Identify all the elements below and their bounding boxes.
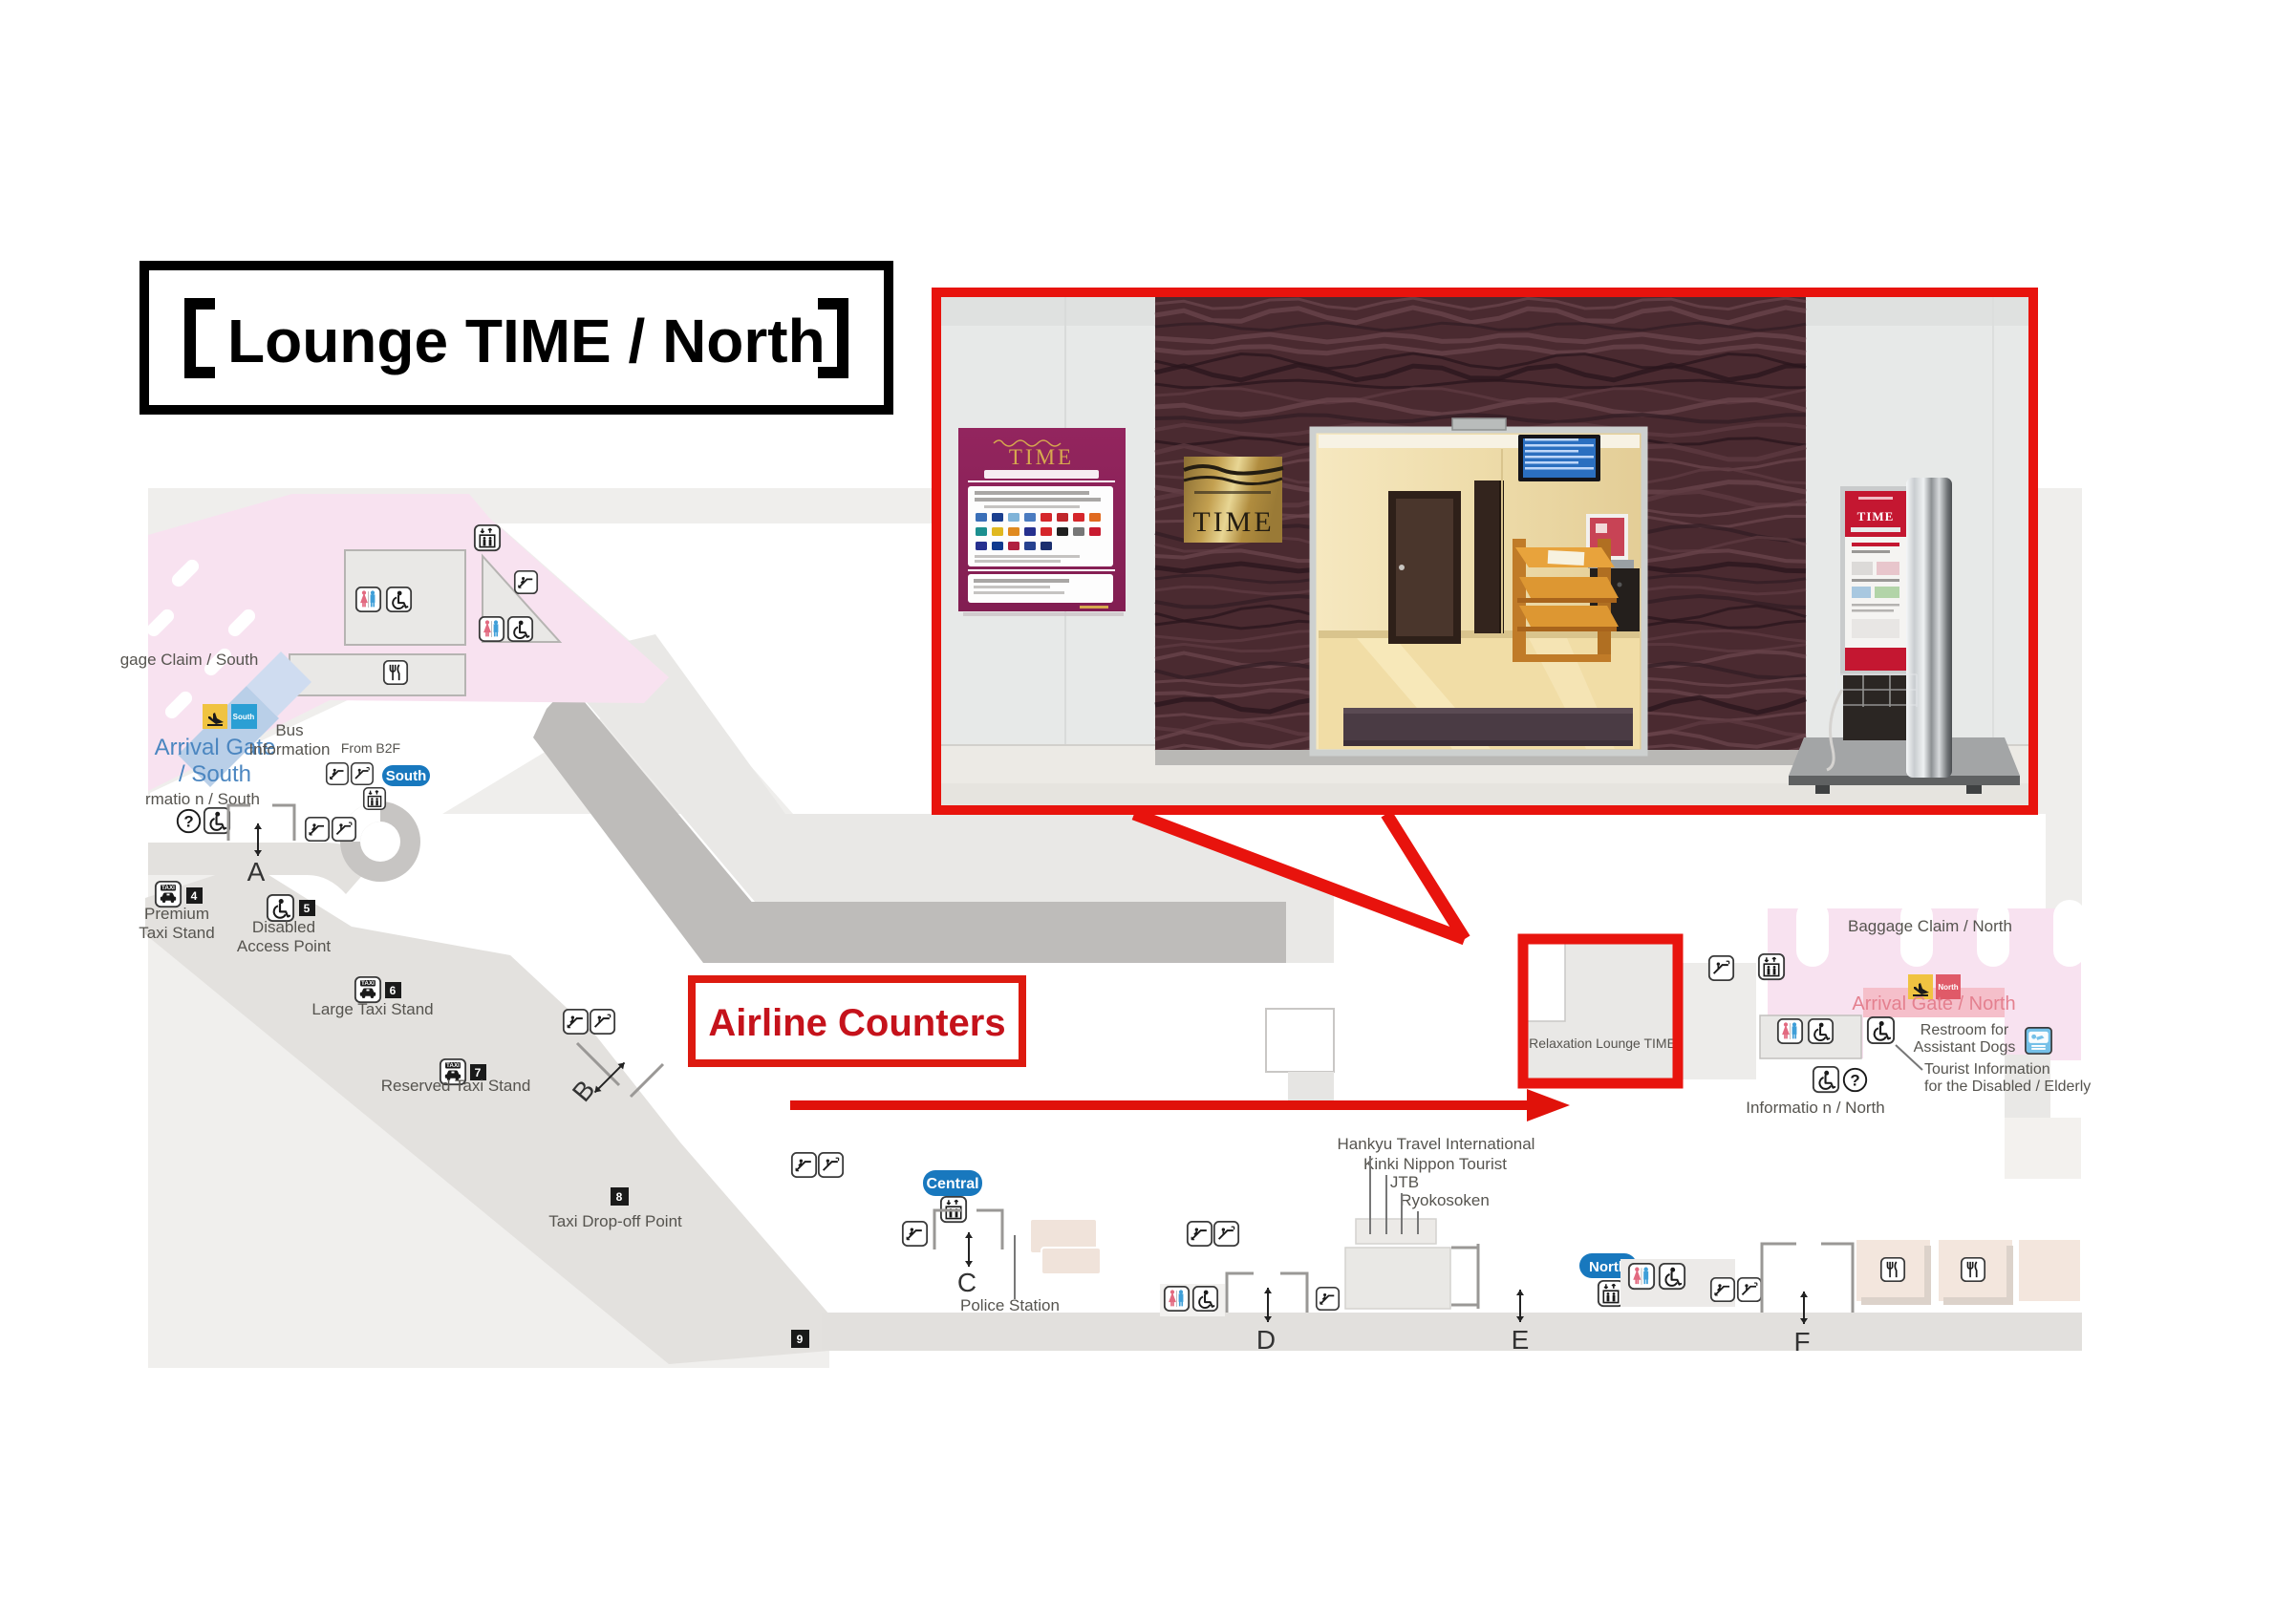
svg-text:6: 6: [390, 984, 397, 997]
svg-text:Disabled: Disabled: [252, 918, 315, 936]
svg-text:E: E: [1512, 1325, 1530, 1355]
svg-text:Baggage Claim / North: Baggage Claim / North: [1848, 917, 2012, 935]
svg-text:5: 5: [304, 902, 311, 915]
svg-text:Informatio n / North: Informatio n / North: [1746, 1099, 1885, 1117]
svg-text:Access Point: Access Point: [237, 937, 332, 955]
svg-text:for the Disabled / Elderly: for the Disabled / Elderly: [1924, 1078, 2091, 1095]
svg-text:Restroom for: Restroom for: [1920, 1022, 2009, 1038]
svg-text:A: A: [247, 857, 266, 886]
svg-text:North: North: [1938, 983, 1958, 992]
svg-text:Bus: Bus: [275, 721, 303, 739]
svg-text:Relaxation Lounge TIME: Relaxation Lounge TIME: [1529, 1036, 1676, 1051]
svg-text:Arrival Gate / North: Arrival Gate / North: [1852, 993, 2015, 1014]
svg-text:Airline Counters: Airline Counters: [708, 1002, 1005, 1044]
svg-text:Police Station: Police Station: [960, 1296, 1060, 1314]
svg-text:Assistant Dogs: Assistant Dogs: [1914, 1039, 2016, 1056]
svg-text:8: 8: [616, 1190, 623, 1204]
svg-text:/ South: / South: [179, 761, 251, 787]
svg-text:South: South: [233, 713, 255, 721]
svg-text:Premium: Premium: [144, 905, 209, 923]
svg-text:JTB: JTB: [1390, 1173, 1419, 1191]
svg-text:TIME: TIME: [1009, 445, 1074, 469]
svg-text:Reserved Taxi Stand: Reserved Taxi Stand: [381, 1077, 531, 1095]
svg-text:From B2F: From B2F: [341, 740, 400, 756]
svg-text:Central: Central: [926, 1176, 978, 1192]
svg-text:D: D: [1256, 1325, 1276, 1355]
svg-text:Lounge TIME / North: Lounge TIME / North: [227, 307, 826, 375]
svg-text:C: C: [957, 1268, 976, 1297]
svg-text:Taxi Stand: Taxi Stand: [139, 924, 214, 942]
svg-text:Large Taxi Stand: Large Taxi Stand: [311, 1000, 433, 1018]
svg-text:F: F: [1793, 1327, 1810, 1356]
svg-text:9: 9: [797, 1333, 804, 1346]
svg-text:TIME: TIME: [1857, 509, 1895, 523]
svg-text:Taxi Drop-off Point: Taxi Drop-off Point: [548, 1212, 682, 1230]
svg-text:Kinki Nippon Tourist: Kinki Nippon Tourist: [1363, 1155, 1507, 1173]
svg-text:TIME: TIME: [1192, 506, 1274, 538]
svg-text:gage Claim / South: gage Claim / South: [120, 651, 259, 669]
svg-text:4: 4: [191, 889, 198, 903]
svg-text:Tourist Information: Tourist Information: [1924, 1061, 2050, 1078]
svg-text:South: South: [386, 768, 427, 784]
svg-text:Hankyu Travel International: Hankyu Travel International: [1338, 1135, 1535, 1153]
svg-text:Ryokosoken: Ryokosoken: [1400, 1191, 1490, 1209]
svg-text:Information: Information: [248, 740, 330, 758]
